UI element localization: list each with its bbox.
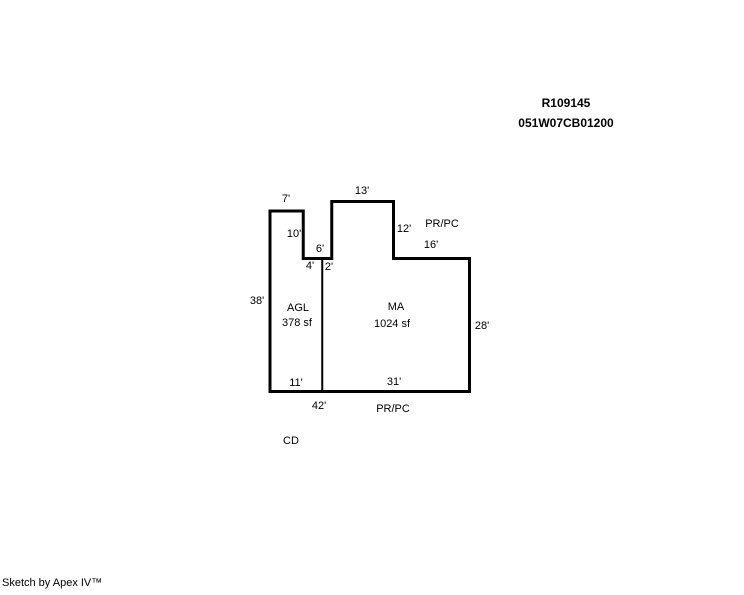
sketch-label-dimension-8: 16'	[424, 239, 438, 251]
sketch-label-dimension-17: 42'	[312, 400, 326, 412]
sketch-label-dimension-2: 10'	[287, 228, 301, 240]
sketch-label-dimension-3: 6'	[316, 243, 324, 255]
sketch-page: R109145 051W07CB01200 7'13'10'6'4'2'12'P…	[0, 0, 744, 595]
sketch-label-dimension-1: 13'	[355, 185, 369, 197]
sketch-label-dimension-15: 11'	[289, 377, 303, 389]
sketch-label-dimension-6: 12'	[397, 223, 411, 235]
sketch-label-dimension-14: 28'	[475, 320, 489, 332]
sketch-label-dimension-16: 31'	[387, 376, 401, 388]
sketch-label-dimension-9: 38'	[250, 295, 264, 307]
sketch-label-area-size-11: 378 sf	[282, 317, 312, 329]
sketch-label-area-code-10: AGL	[287, 302, 309, 314]
sketch-label-annotation-19: CD	[283, 435, 299, 447]
sketch-label-dimension-5: 2'	[325, 261, 333, 273]
sketch-label-annotation-7: PR/PC	[425, 218, 459, 230]
sketch-label-dimension-0: 7'	[282, 193, 290, 205]
sketch-label-annotation-18: PR/PC	[376, 403, 410, 415]
sketch-label-area-code-12: MA	[388, 301, 405, 313]
sketch-credit: Sketch by Apex IV™	[2, 577, 102, 589]
sketch-labels-layer: 7'13'10'6'4'2'12'PR/PC16'38'AGL378 sfMA1…	[0, 0, 744, 595]
sketch-label-area-size-13: 1024 sf	[374, 318, 410, 330]
sketch-label-dimension-4: 4'	[306, 260, 314, 272]
